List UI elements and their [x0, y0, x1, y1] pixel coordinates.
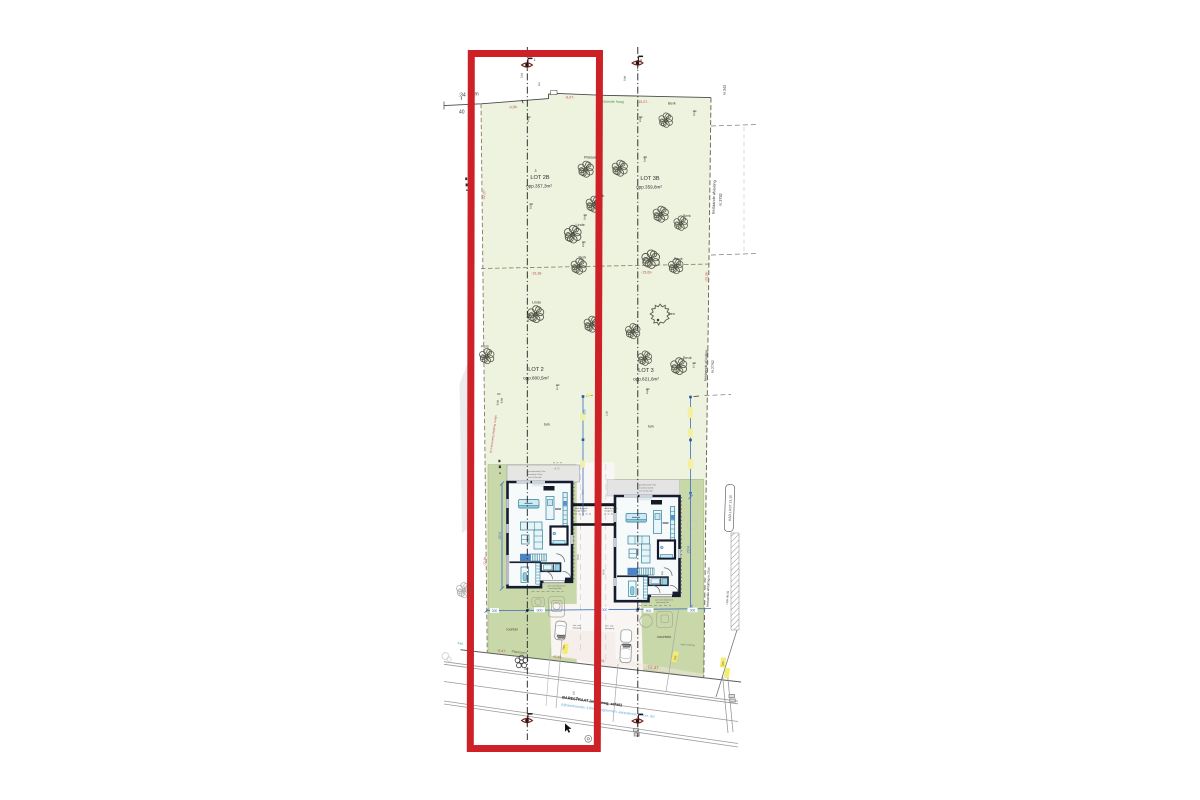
- svg-text:m: m: [475, 92, 479, 98]
- svg-text:300: 300: [602, 608, 608, 612]
- svg-text:-23,36-: -23,36-: [705, 271, 709, 282]
- svg-text:9000: 9000: [601, 569, 605, 575]
- svg-text:LOT 3: LOT 3: [638, 368, 653, 374]
- svg-text:+4,75: +4,75: [554, 467, 561, 470]
- svg-text:Berk: Berk: [579, 256, 587, 260]
- svg-text:tuin: tuin: [648, 425, 654, 429]
- svg-text:-8,98: -8,98: [500, 397, 504, 404]
- svg-text:Beuk: Beuk: [683, 356, 692, 360]
- svg-text:-9,06: -9,06: [496, 399, 500, 406]
- svg-text:Kad.: Kad.: [457, 641, 464, 646]
- svg-text:-6,07-: -6,07-: [565, 96, 575, 100]
- svg-text:40: 40: [459, 110, 465, 116]
- svg-text:-22,38-: -22,38-: [483, 556, 488, 566]
- svg-text:9000: 9000: [576, 554, 580, 560]
- svg-text:-9,08-: -9,08-: [508, 105, 518, 110]
- svg-text:0,84: 0,84: [520, 72, 524, 78]
- svg-text:-22,37-: -22,37-: [482, 189, 487, 200]
- svg-text:tuin: tuin: [544, 423, 550, 427]
- svg-text:Plataan: Plataan: [584, 156, 597, 160]
- svg-text:nok 10,5m dak: nok 10,5m dak: [528, 477, 543, 479]
- svg-text:nr.3782: nr.3782: [719, 193, 723, 206]
- svg-text:1504: 1504: [498, 532, 502, 540]
- svg-text:opp.357,3m²: opp.357,3m²: [526, 184, 552, 189]
- svg-text:doorgang: doorgang: [573, 628, 581, 630]
- svg-text:nok 10,5m dak: nok 10,5m dak: [639, 491, 654, 493]
- svg-text:opp.821,6m²: opp.821,6m²: [633, 377, 659, 382]
- svg-text:opp.359,8m²: opp.359,8m²: [636, 185, 662, 190]
- svg-text:hoogte 3,00m: hoogte 3,00m: [575, 510, 588, 513]
- svg-text:300: 300: [492, 609, 498, 613]
- svg-text:500: 500: [583, 409, 587, 414]
- svg-text:nr.37/62: nr.37/62: [711, 360, 715, 373]
- svg-text:Kers: Kers: [481, 345, 489, 349]
- svg-text:min. vrije: min. vrije: [606, 625, 615, 627]
- svg-text:3: 3: [535, 169, 537, 173]
- svg-text:4: 4: [640, 59, 642, 63]
- svg-text:Berk: Berk: [668, 102, 676, 106]
- svg-text:1,50: 1,50: [605, 410, 609, 416]
- svg-text:-15,07-: -15,07-: [637, 100, 649, 104]
- svg-text:LOT 2: LOT 2: [528, 367, 543, 373]
- svg-text::34: :34: [459, 93, 466, 99]
- svg-text:verharding 30m: verharding 30m: [549, 587, 563, 590]
- svg-text:LOT 2B: LOT 2B: [530, 175, 549, 181]
- svg-text:1: 1: [534, 58, 536, 62]
- svg-text:gevelbreedte 9,5m: gevelbreedte 9,5m: [639, 484, 656, 487]
- svg-text:Linde: Linde: [576, 223, 585, 227]
- svg-text:Linde: Linde: [532, 301, 541, 305]
- svg-text:900: 900: [537, 608, 543, 612]
- svg-text:voortuin: voortuin: [657, 634, 671, 639]
- svg-text:gevelbreedte 9,5m: gevelbreedte 9,5m: [528, 470, 545, 473]
- svg-text:voortuin: voortuin: [506, 628, 518, 632]
- svg-text:LOT 3B: LOT 3B: [640, 176, 659, 182]
- svg-text:Beuk: Beuk: [674, 257, 683, 261]
- svg-text:900: 900: [646, 609, 652, 613]
- svg-text:417: 417: [524, 667, 529, 671]
- svg-text:kroonlijst 6,20m: kroonlijst 6,20m: [639, 487, 654, 490]
- svg-text:nr.343: nr.343: [723, 85, 727, 95]
- svg-text:kroonlijst 6,20m: kroonlijst 6,20m: [528, 473, 543, 476]
- svg-text:1504: 1504: [686, 546, 690, 554]
- svg-text:0,86: 0,86: [623, 75, 627, 81]
- svg-text:doorgang: doorgang: [606, 628, 614, 630]
- svg-text:300: 300: [690, 608, 696, 612]
- svg-text:Den: Den: [668, 312, 675, 316]
- svg-text:-15,69-: -15,69-: [641, 271, 653, 275]
- svg-text:hoogte 3,00m: hoogte 3,00m: [605, 510, 618, 513]
- svg-text:Berk: Berk: [683, 214, 691, 218]
- svg-text:-15,38-: -15,38-: [531, 272, 543, 276]
